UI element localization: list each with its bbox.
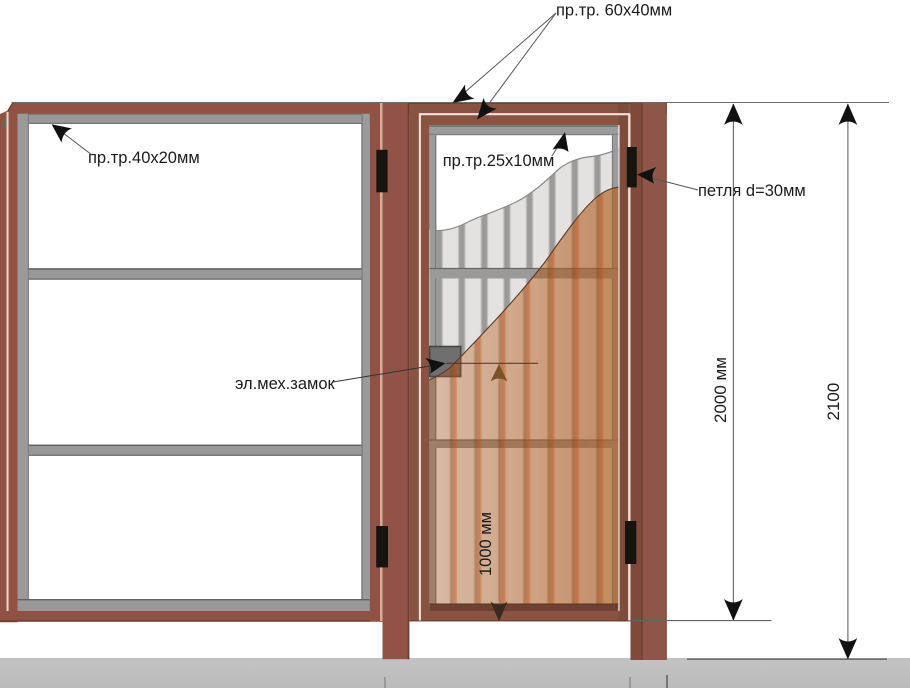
svg-text:пр.тр. 60х40мм: пр.тр. 60х40мм: [556, 2, 672, 20]
svg-text:2000 мм: 2000 мм: [711, 357, 730, 423]
svg-text:пр.тр.25х10мм: пр.тр.25х10мм: [443, 152, 555, 170]
svg-text:пр.тр.40х20мм: пр.тр.40х20мм: [88, 149, 200, 167]
svg-text:петля d=30мм: петля d=30мм: [698, 182, 806, 200]
svg-text:1000 мм: 1000 мм: [477, 512, 495, 576]
svg-text:эл.мех.замок: эл.мех.замок: [235, 375, 336, 393]
svg-text:2100: 2100: [824, 383, 843, 421]
